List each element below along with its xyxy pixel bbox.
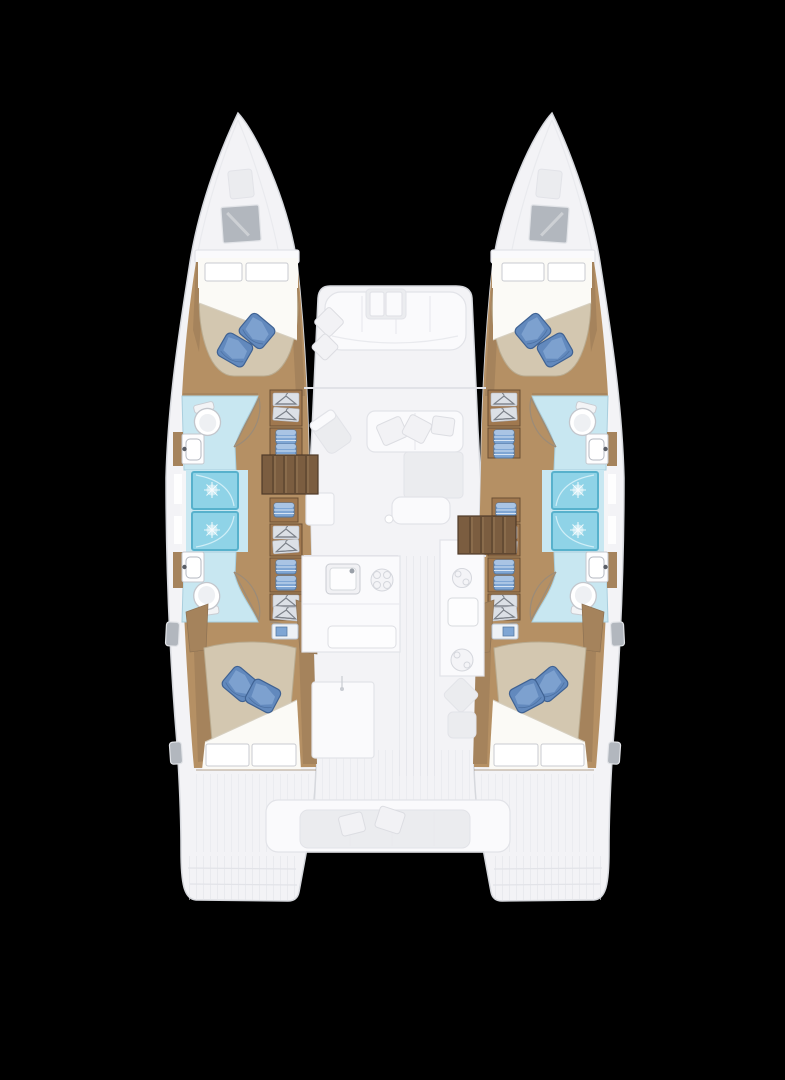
helm-module — [448, 712, 476, 738]
table-leg — [385, 515, 393, 523]
starboard-companionway-steps — [458, 516, 516, 554]
port-companionway-steps — [262, 455, 318, 494]
burner — [453, 569, 472, 588]
foredeck-lounge — [311, 289, 466, 361]
cushion — [431, 416, 455, 437]
floor-plan-page — [0, 0, 785, 1080]
burner — [451, 649, 473, 671]
catamaran-floor-plan — [0, 0, 785, 1080]
nav-desk — [306, 493, 334, 525]
galley-island — [312, 682, 374, 758]
ottoman-table — [392, 497, 450, 524]
stove-burners — [371, 569, 393, 591]
counter-sink — [328, 626, 396, 648]
cockpit — [266, 800, 510, 852]
counter-module — [448, 598, 478, 626]
sofa-chaise — [404, 452, 463, 498]
